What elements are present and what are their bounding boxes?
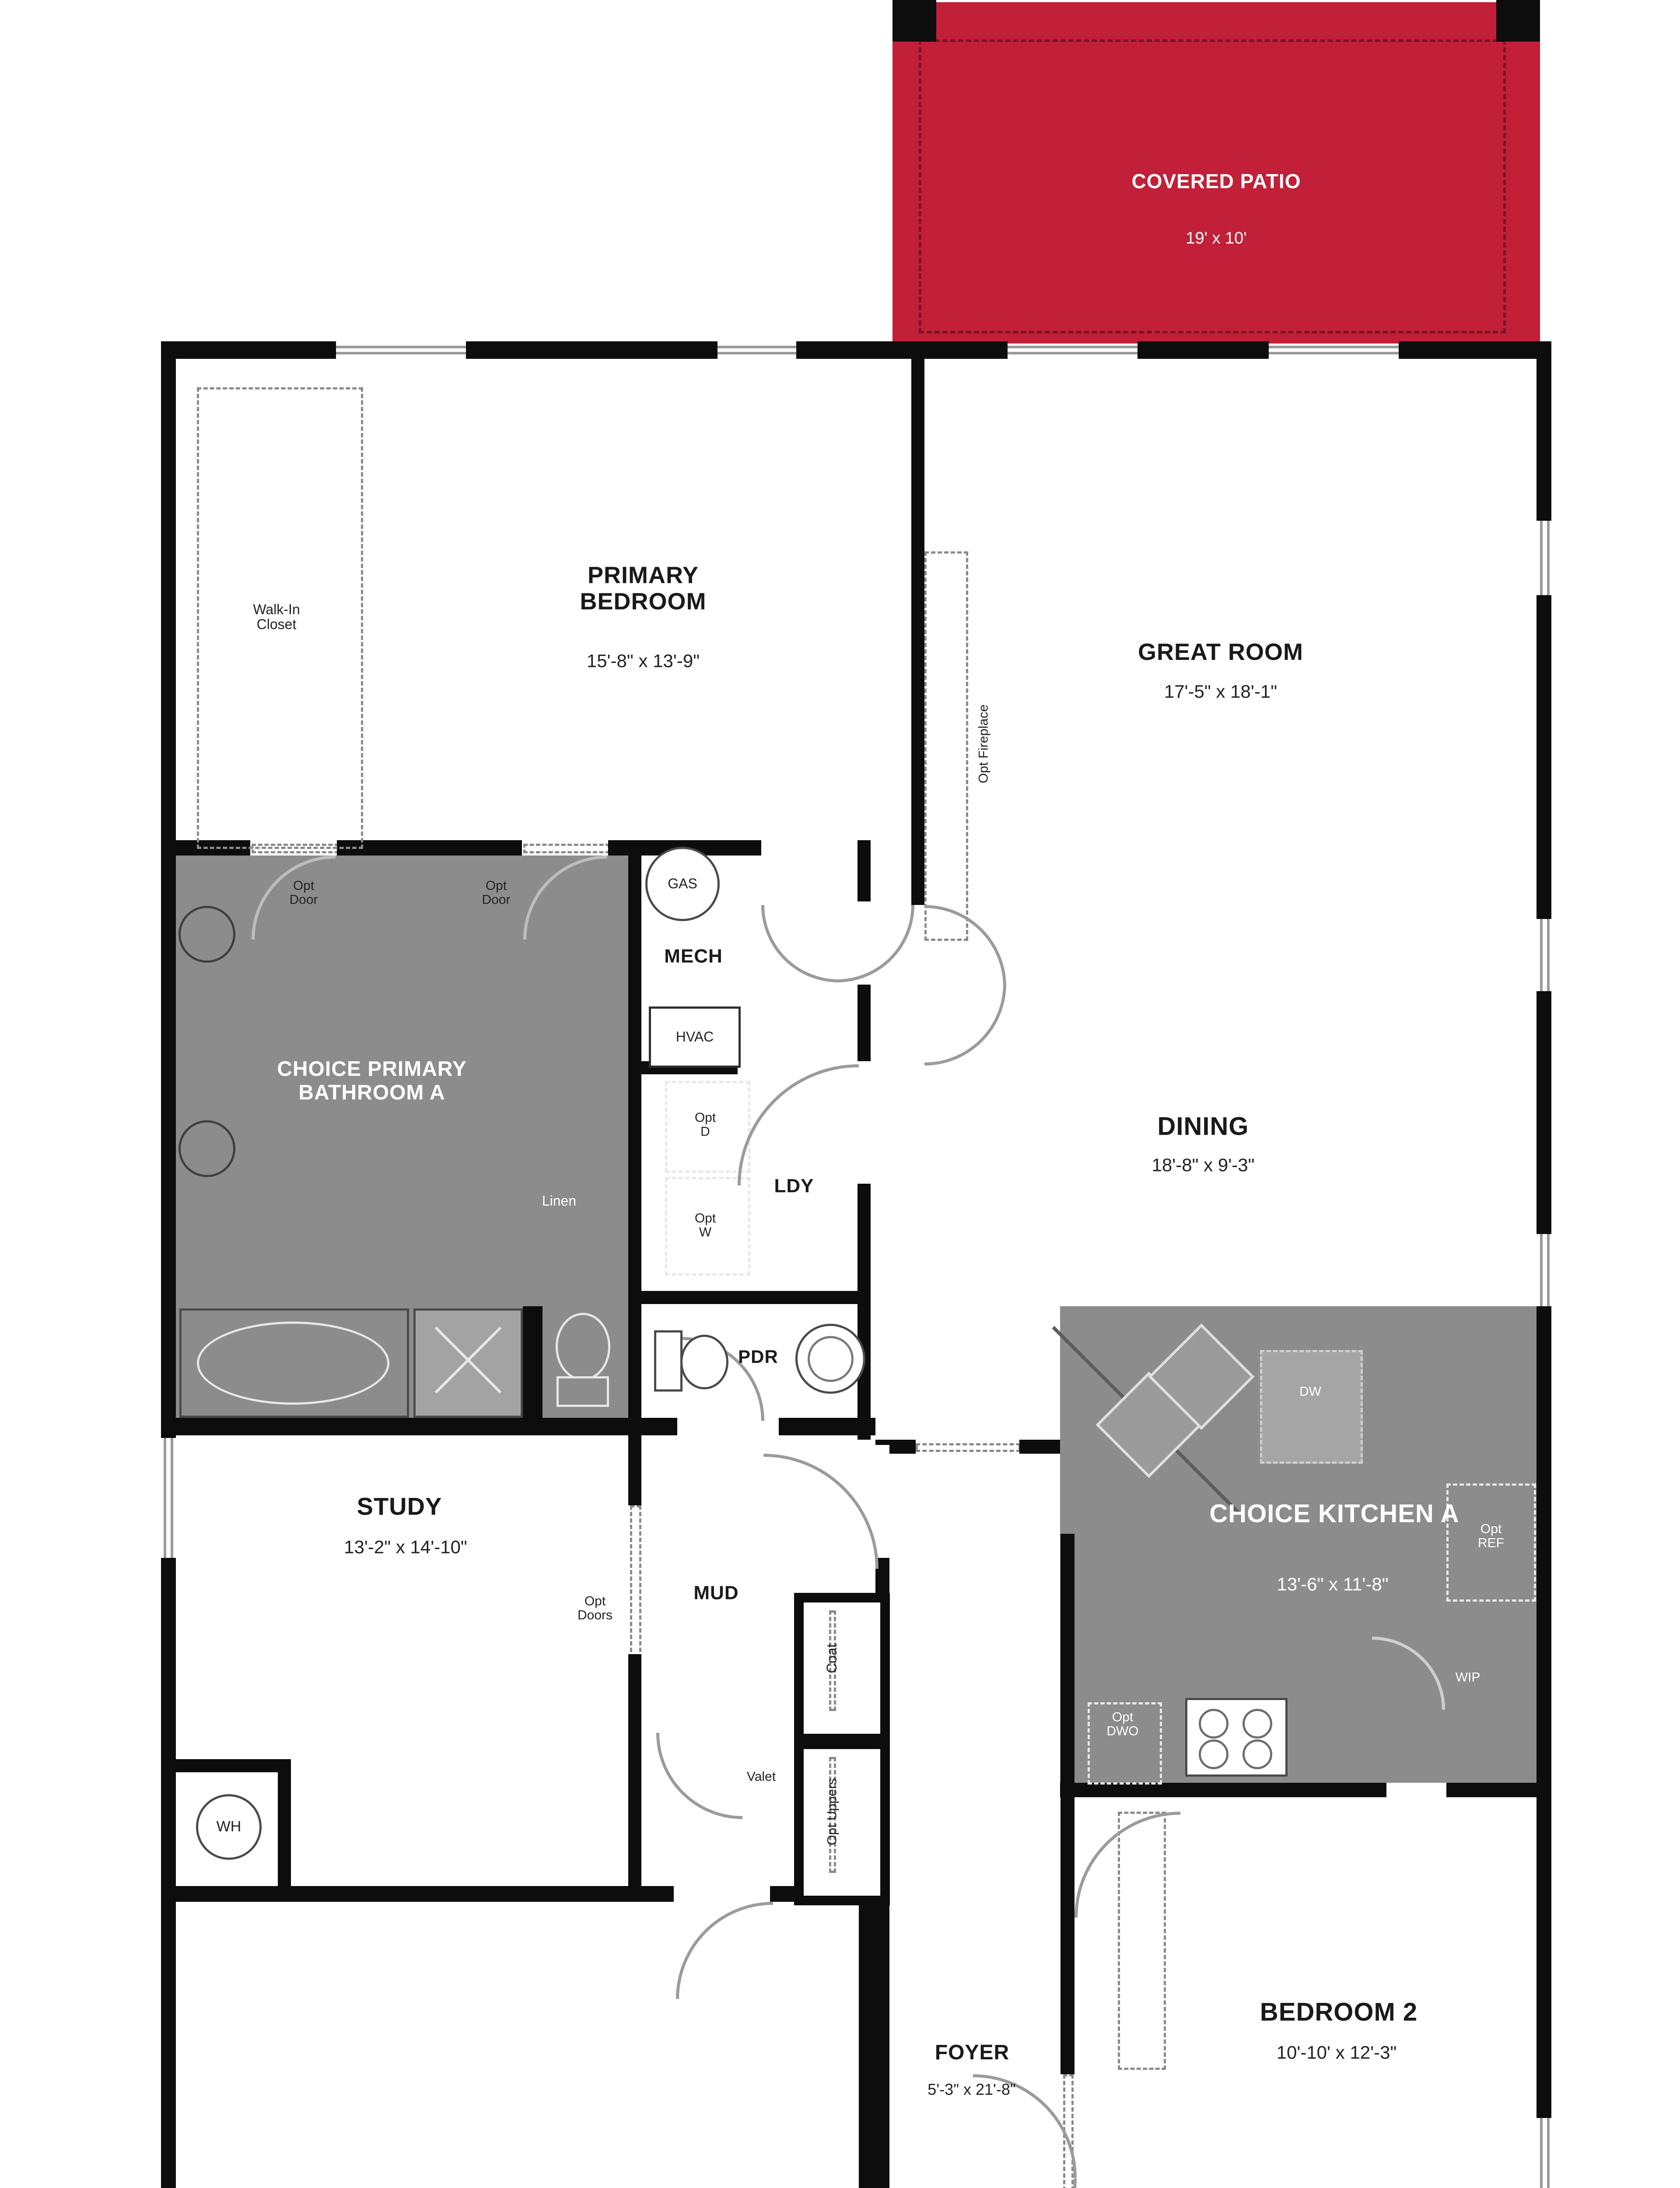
wall (857, 840, 871, 901)
wh-label: WH (217, 1819, 241, 1835)
toilet-icon (556, 1313, 610, 1381)
wall (466, 341, 717, 359)
wall (337, 840, 522, 856)
room-title-great-room: GREAT ROOM (1046, 639, 1396, 665)
window (336, 346, 466, 354)
label-opt-d: Opt D (690, 1111, 721, 1139)
wall (1536, 1306, 1551, 2118)
room-dims-foyer: 5'-3" x 21'-8" (927, 2081, 1015, 2098)
gas-label: GAS (668, 877, 697, 891)
room-title-kitchen: CHOICE KITCHEN A (1199, 1500, 1470, 1529)
wall (1060, 1534, 1074, 1783)
room-dims-dining: 18'-8" x 9'-3" (1152, 1154, 1255, 1175)
wall (278, 1759, 291, 1902)
patio-door (1269, 346, 1399, 354)
room-dims-primary-bedroom: 15'-8" x 13'-9" (587, 650, 700, 671)
hvac-label: HVAC (676, 1030, 714, 1045)
wall (1137, 341, 1269, 359)
wall (641, 1886, 674, 1902)
dishwasher-icon (1260, 1350, 1363, 1464)
burner (1242, 1709, 1272, 1739)
wall (161, 341, 336, 359)
label-opt-dwo: Opt DWO (1099, 1711, 1147, 1738)
label-wip: WIP (1456, 1670, 1480, 1684)
burner (1199, 1739, 1228, 1769)
patio-wall-stub-right (1496, 0, 1540, 42)
water-heater-icon: WH (196, 1794, 262, 1860)
door-arc (763, 1454, 878, 1569)
door-arc (973, 2178, 1077, 2188)
sink-icon (178, 1120, 235, 1177)
label-linen: Linen (542, 1194, 576, 1209)
room-title-pdr: PDR (738, 1346, 778, 1367)
wall (889, 1440, 916, 1454)
sink-bowl (808, 1336, 854, 1382)
wall (859, 1886, 875, 2188)
cased-opening (916, 1443, 1021, 1452)
window (1540, 521, 1550, 595)
wall (779, 1418, 875, 1435)
room-dims-great-room: 17'-5" x 18'-1" (1164, 681, 1277, 701)
wall (911, 341, 924, 905)
gas-meter-icon: GAS (645, 847, 720, 921)
toilet-tank (654, 1330, 682, 1392)
label-opt-ref: Opt REF (1469, 1522, 1513, 1550)
label-opt-uppers: Opt Uppers (825, 1777, 839, 1847)
door-arc (676, 1902, 773, 1999)
door-arc (656, 1733, 742, 1819)
wall (1446, 1783, 1536, 1797)
wall (796, 341, 1008, 359)
door-arc (837, 905, 914, 982)
wall (161, 1886, 641, 1902)
room-title-dining: DINING (1158, 1113, 1249, 1141)
burner (1199, 1709, 1228, 1739)
room-title-mech: MECH (664, 945, 723, 967)
room-title-mud: MUD (693, 1582, 738, 1603)
door-arc (924, 984, 1006, 1066)
floor-plan: COVERED PATIO 19' x 10' (0, 0, 1680, 2188)
wall (875, 1440, 889, 1445)
wall (1399, 341, 1551, 359)
room-title-walk-in: Walk-In Closet (239, 602, 314, 631)
window (717, 346, 796, 354)
room-title-bedroom2: BEDROOM 2 (1260, 1999, 1417, 2027)
wall (857, 985, 871, 1061)
patio-door (1008, 346, 1137, 354)
wall (641, 1291, 871, 1304)
patio-title: COVERED PATIO (1122, 170, 1310, 193)
room-title-ldy: LDY (774, 1175, 814, 1196)
wall (161, 1418, 677, 1435)
window (1540, 2118, 1550, 2188)
window (1540, 1234, 1550, 1306)
hvac-icon: HVAC (649, 1006, 741, 1068)
wall (1060, 1783, 1074, 2074)
tub-oval (197, 1322, 389, 1405)
opt-uppers-closet (794, 1739, 890, 1905)
label-dw: DW (1299, 1385, 1321, 1399)
label-opt-door-2: Opt Door (474, 879, 518, 907)
room-title-primary-bedroom: PRIMARY BEDROOM (529, 562, 757, 615)
sink-icon (795, 1324, 865, 1394)
door-arc (924, 905, 1006, 987)
wall (1536, 991, 1551, 1234)
wall (1060, 1783, 1386, 1797)
room-dims-bedroom2: 10'-10' x 12'-3" (1277, 2042, 1397, 2062)
wall (1536, 595, 1551, 919)
wall (1536, 341, 1551, 521)
wall (628, 1654, 641, 1886)
patio-wall-stub-left (892, 0, 936, 42)
stove-icon (1185, 1698, 1288, 1777)
wall (161, 1558, 176, 2188)
label-opt-door-1: Opt Door (282, 879, 325, 907)
wall (1019, 1440, 1060, 1454)
wall (176, 1759, 291, 1772)
room-title-study: STUDY (357, 1493, 442, 1521)
wall (523, 1306, 542, 1418)
toilet-tank (556, 1376, 609, 1407)
shower-icon (413, 1308, 523, 1418)
wall (628, 1435, 641, 1505)
label-coat: Coat (825, 1644, 840, 1673)
opt-doors-opening (630, 1505, 641, 1659)
window (164, 1438, 173, 1558)
wall (628, 856, 641, 1418)
door-arc (1074, 1812, 1180, 1918)
window (1540, 919, 1550, 991)
wall (161, 341, 176, 1438)
label-valet: Valet (747, 1770, 776, 1784)
coat-closet (794, 1593, 890, 1743)
label-opt-w: Opt W (690, 1212, 721, 1239)
opt-fireplace-box (924, 551, 968, 941)
room-dims-study: 13'-2" x 14'-10" (344, 1536, 467, 1557)
door-arc (761, 905, 839, 982)
sink-icon (178, 906, 235, 963)
patio-dims: 19' x 10' (1186, 229, 1246, 248)
opt-door-opening (523, 844, 610, 853)
toilet-icon (680, 1335, 728, 1389)
burner (1242, 1739, 1272, 1769)
room-dims-kitchen: 13'-6" x 11'-8" (1277, 1574, 1388, 1594)
wall (857, 1184, 871, 1440)
room-title-bathroom: CHOICE PRIMARY BATHROOM A (276, 1057, 468, 1105)
label-opt-doors: Opt Doors (571, 1595, 619, 1622)
label-opt-fireplace: Opt Fireplace (976, 705, 990, 783)
door-arc (738, 1064, 859, 1185)
room-title-foyer: FOYER (935, 2041, 1009, 2065)
